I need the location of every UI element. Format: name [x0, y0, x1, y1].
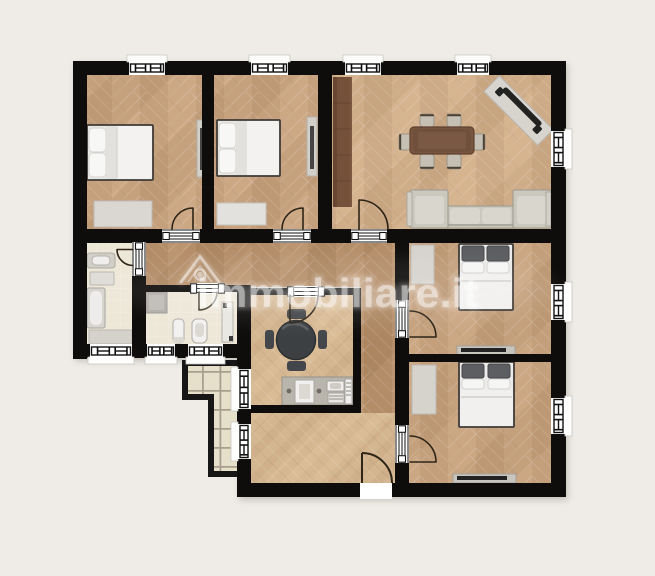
svg-text:immobiliare.it: immobiliare.it — [197, 270, 478, 316]
